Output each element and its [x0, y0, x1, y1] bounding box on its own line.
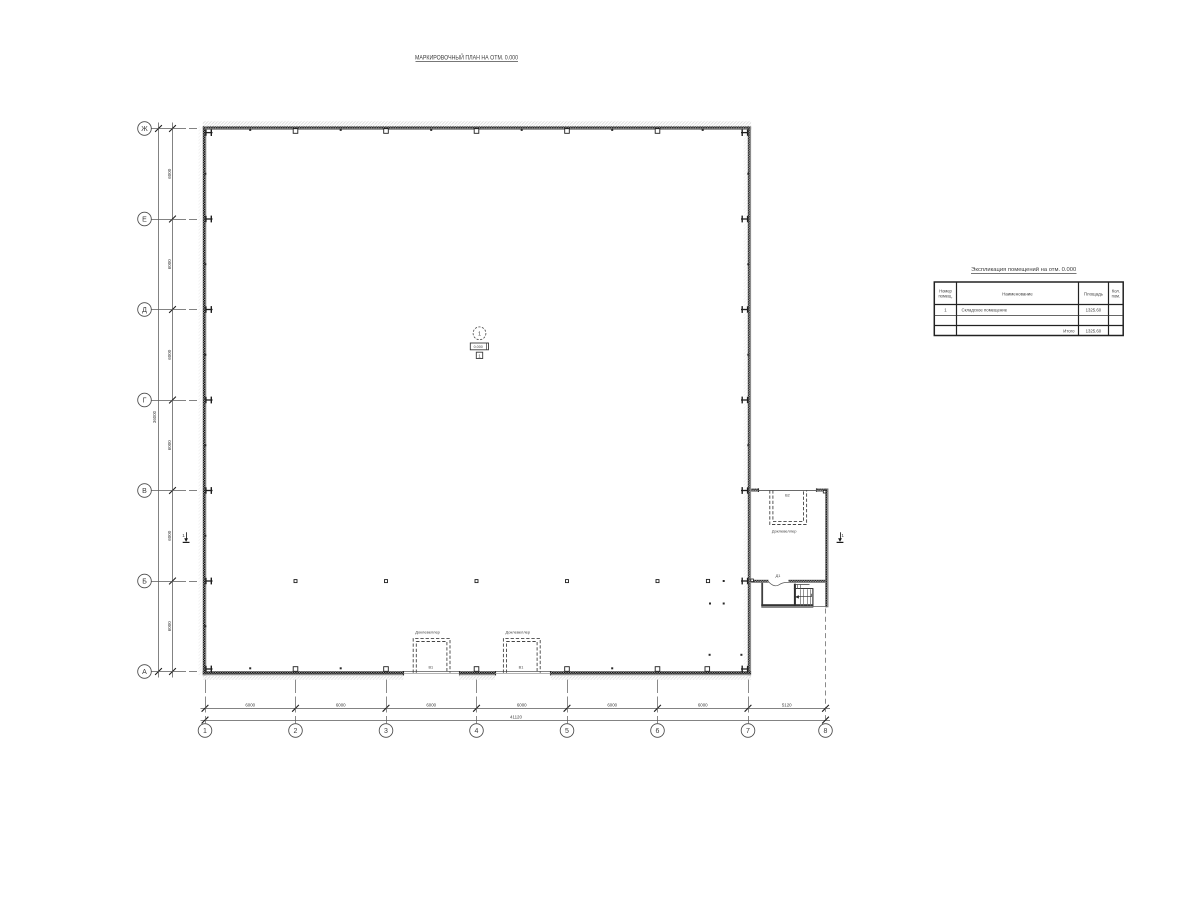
svg-text:6: 6: [656, 728, 660, 735]
svg-text:41120: 41120: [510, 715, 522, 720]
svg-text:А: А: [142, 669, 147, 676]
svg-text:В: В: [142, 488, 147, 495]
svg-text:6000: 6000: [698, 702, 708, 707]
svg-text:Доклевеллер: Доклевеллер: [505, 629, 530, 634]
svg-text:Наименование: Наименование: [1002, 292, 1033, 297]
svg-text:помещ.: помещ.: [938, 294, 952, 299]
svg-text:3: 3: [384, 728, 388, 735]
svg-text:1: 1: [203, 728, 207, 735]
svg-text:5120: 5120: [782, 702, 792, 707]
svg-text:2: 2: [294, 728, 298, 735]
svg-text:6000: 6000: [167, 259, 172, 270]
svg-text:В1: В1: [519, 665, 524, 669]
svg-text:Экспликация помещений на отм.: Экспликация помещений на отм. 0.000: [971, 266, 1076, 273]
svg-text:6000: 6000: [167, 530, 172, 541]
svg-text:6000: 6000: [426, 702, 436, 707]
svg-text:МАРКИРОВОЧНЫЙ ПЛАН НА ОТМ. 0.0: МАРКИРОВОЧНЫЙ ПЛАН НА ОТМ. 0.000: [415, 53, 518, 62]
svg-text:6000: 6000: [167, 621, 172, 632]
svg-text:Складское помещение: Складское помещение: [962, 308, 1008, 313]
svg-text:В1: В1: [428, 665, 433, 669]
svg-text:Д1: Д1: [776, 574, 781, 578]
svg-text:6000: 6000: [245, 702, 255, 707]
svg-text:6000: 6000: [517, 702, 527, 707]
svg-text:1: 1: [478, 332, 481, 338]
svg-text:Доклевеллер: Доклевеллер: [772, 528, 797, 533]
svg-text:Д: Д: [142, 307, 147, 314]
svg-text:1: 1: [182, 533, 185, 538]
svg-text:Б: Б: [142, 579, 147, 586]
svg-text:Г: Г: [143, 398, 147, 405]
svg-text:Итого: Итого: [1063, 329, 1075, 334]
svg-text:7: 7: [746, 728, 750, 735]
svg-text:Е: Е: [142, 217, 147, 224]
svg-text:6000: 6000: [167, 440, 172, 451]
svg-text:Площадь: Площадь: [1084, 292, 1104, 297]
svg-text:4: 4: [475, 728, 479, 735]
svg-text:пом.: пом.: [1112, 294, 1120, 299]
svg-text:Ж: Ж: [141, 126, 148, 133]
svg-text:В2: В2: [785, 494, 790, 498]
svg-text:5: 5: [565, 728, 569, 735]
svg-text:1325.60: 1325.60: [1086, 308, 1102, 313]
svg-text:8: 8: [824, 728, 828, 735]
svg-text:6000: 6000: [167, 168, 172, 179]
svg-text:36000: 36000: [152, 410, 157, 423]
svg-text:1: 1: [841, 533, 844, 538]
svg-text:Доклевеллер: Доклевеллер: [415, 629, 440, 634]
svg-text:6000: 6000: [336, 702, 346, 707]
svg-text:0.000: 0.000: [474, 345, 483, 349]
svg-text:1325.60: 1325.60: [1086, 329, 1102, 334]
svg-text:6000: 6000: [167, 349, 172, 360]
svg-text:6000: 6000: [607, 702, 617, 707]
